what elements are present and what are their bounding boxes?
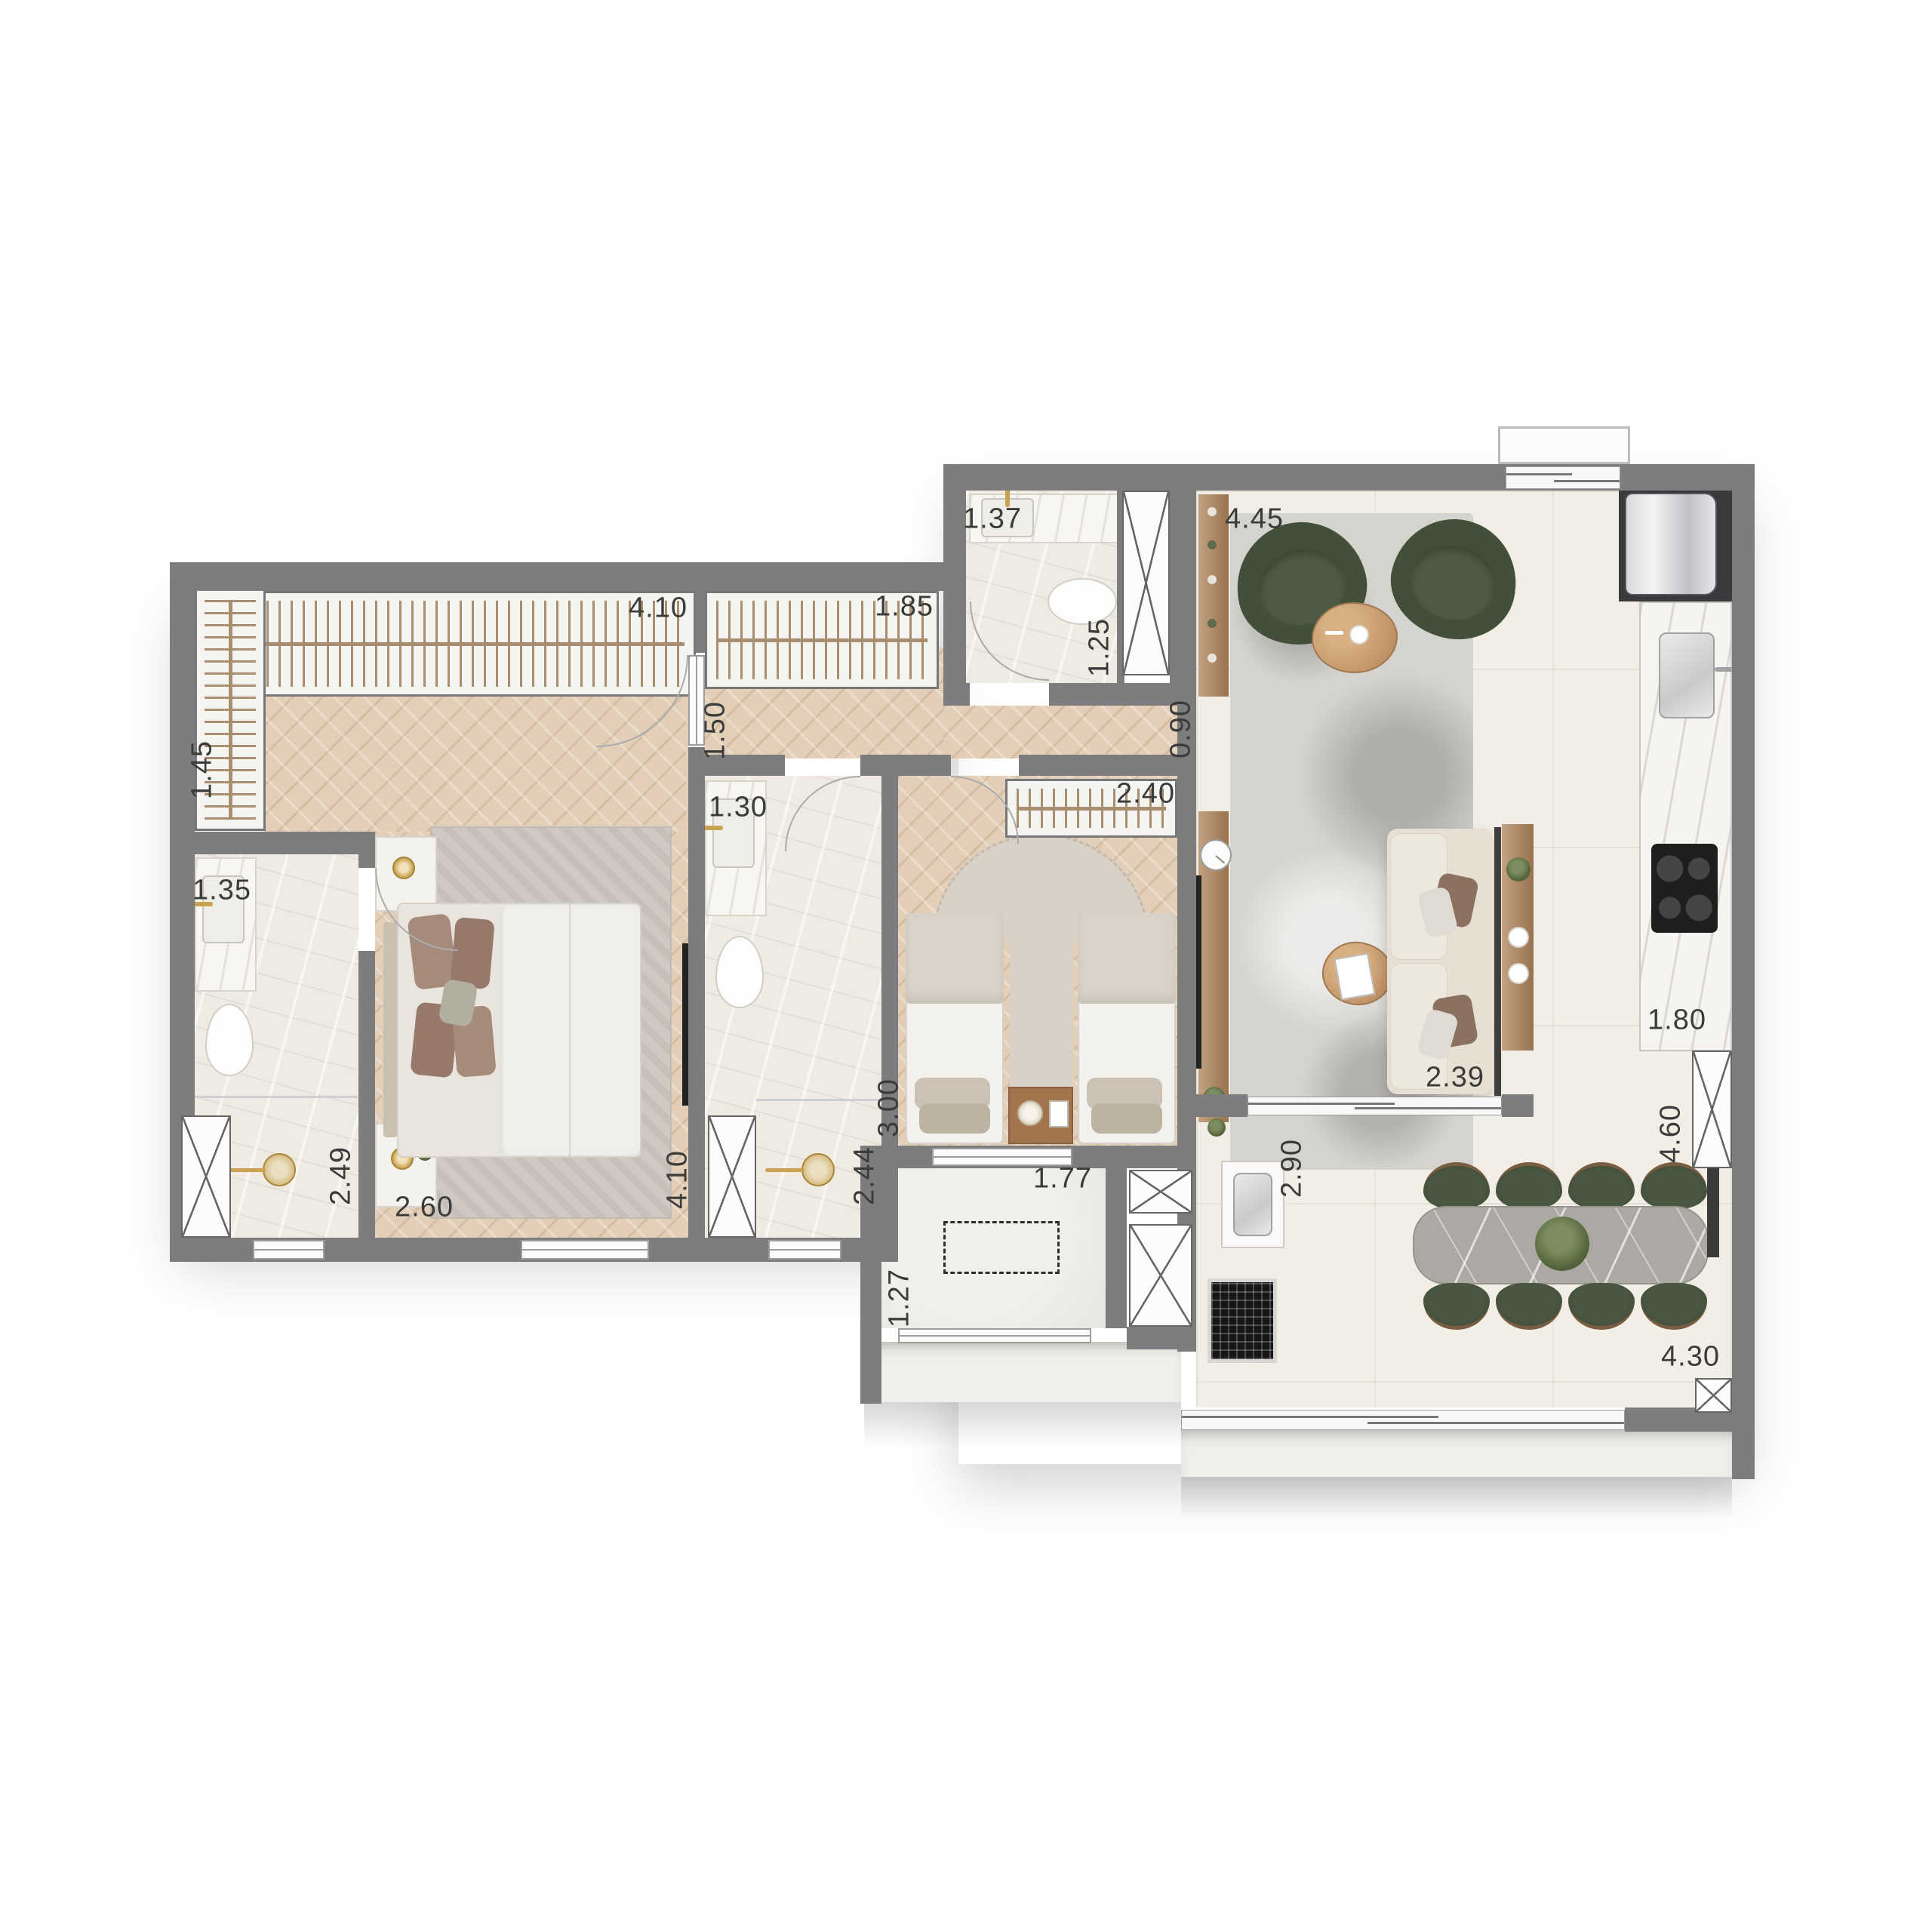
dimension-labels: 4.101.851.374.451.451.501.250.901.351.30… — [0, 0, 1932, 1932]
dimension-label-19-2.90: 2.90 — [1276, 1139, 1309, 1198]
dimension-label-12-2.49: 2.49 — [325, 1146, 358, 1205]
dimension-label-15-3.00: 3.00 — [873, 1078, 906, 1137]
dimension-label-10-2.40: 2.40 — [1116, 778, 1175, 811]
dimension-label-22-4.30: 4.30 — [1661, 1341, 1720, 1374]
dimension-label-13-4.10: 4.10 — [662, 1150, 694, 1209]
dimension-label-4-1.45: 1.45 — [186, 740, 219, 799]
dimension-label-21-4.60: 4.60 — [1655, 1104, 1687, 1163]
dimension-label-1-1.85: 1.85 — [875, 591, 934, 623]
dimension-label-17-1.27: 1.27 — [884, 1269, 916, 1327]
dimension-label-9-1.30: 1.30 — [709, 792, 768, 824]
dimension-label-11-2.60: 2.60 — [395, 1192, 454, 1224]
dimension-label-6-1.25: 1.25 — [1084, 618, 1116, 677]
dimension-label-5-1.50: 1.50 — [700, 701, 732, 760]
dimension-label-16-1.77: 1.77 — [1033, 1163, 1092, 1195]
dimension-label-0-4.10: 4.10 — [629, 592, 688, 625]
dimension-label-7-0.90: 0.90 — [1165, 700, 1198, 758]
dimension-label-14-2.44: 2.44 — [849, 1146, 881, 1205]
dimension-label-18-2.39: 2.39 — [1426, 1062, 1484, 1094]
dimension-label-20-1.80: 1.80 — [1647, 1004, 1706, 1037]
dimension-label-2-1.37: 1.37 — [963, 503, 1022, 536]
dimension-label-3-4.45: 4.45 — [1225, 503, 1284, 536]
dimension-label-8-1.35: 1.35 — [192, 875, 251, 907]
floor-plan: 4.101.851.374.451.451.501.250.901.351.30… — [0, 0, 1932, 1932]
